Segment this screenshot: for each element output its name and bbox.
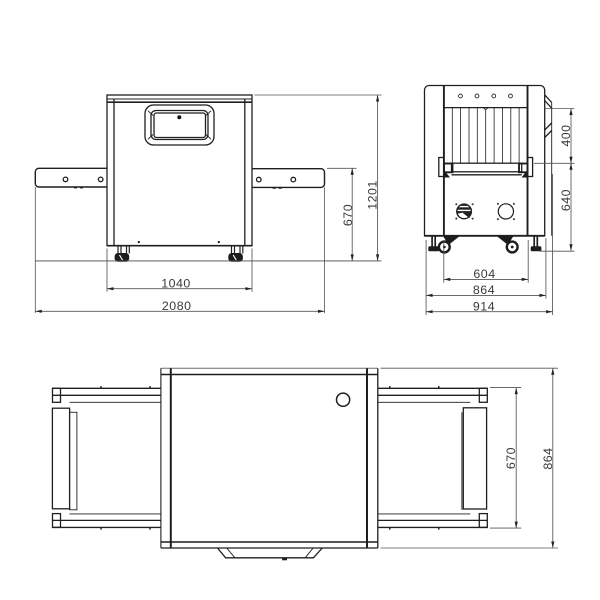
svg-text:640: 640 xyxy=(559,189,573,211)
svg-text:604: 604 xyxy=(473,267,495,281)
svg-text:1040: 1040 xyxy=(161,276,191,290)
svg-text:400: 400 xyxy=(559,124,573,146)
svg-text:2080: 2080 xyxy=(162,299,192,313)
svg-text:1201: 1201 xyxy=(366,180,380,210)
svg-text:864: 864 xyxy=(541,447,555,469)
svg-text:914: 914 xyxy=(473,300,495,314)
svg-text:670: 670 xyxy=(504,447,518,469)
svg-text:670: 670 xyxy=(341,204,355,226)
svg-text:864: 864 xyxy=(473,283,495,297)
